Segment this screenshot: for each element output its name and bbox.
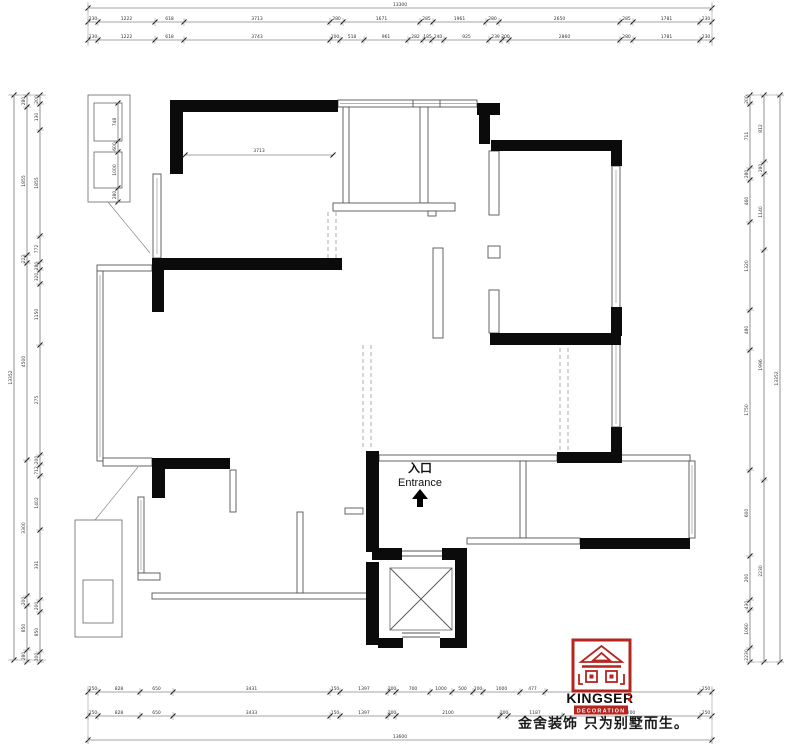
dim-chain-right-total: 13352: [774, 93, 784, 665]
svg-text:2230: 2230: [758, 565, 764, 577]
svg-text:1000: 1000: [496, 686, 508, 692]
svg-text:285: 285: [422, 16, 431, 22]
svg-text:280: 280: [622, 34, 631, 40]
entrance-label-cn: 入口: [408, 461, 432, 475]
svg-text:200: 200: [34, 95, 40, 104]
svg-text:280: 280: [744, 170, 750, 179]
svg-text:3743: 3743: [251, 34, 263, 40]
svg-text:13300: 13300: [393, 2, 407, 8]
svg-text:3300: 3300: [21, 522, 27, 534]
elevator-shaft: [390, 551, 452, 637]
svg-text:185: 185: [423, 34, 432, 40]
svg-text:331: 331: [34, 561, 40, 570]
svg-text:4500: 4500: [21, 356, 27, 368]
svg-text:700: 700: [409, 686, 418, 692]
svg-text:200: 200: [388, 686, 397, 692]
dim-chain-left-inner: 2001301855772280320115027520071214023312…: [34, 93, 44, 665]
svg-text:230: 230: [702, 16, 711, 22]
svg-text:600: 600: [112, 142, 118, 151]
svg-text:1402: 1402: [34, 497, 40, 509]
svg-text:650: 650: [152, 710, 161, 716]
dim-chain-detail-box: 7486001000280: [112, 101, 122, 205]
dim-chain-left-total: 13352: [8, 93, 18, 663]
floor-plan-drawing: 13300 2301222618371328016712851961280265…: [0, 0, 800, 756]
svg-text:200: 200: [34, 456, 40, 465]
svg-text:3713: 3713: [251, 16, 263, 22]
svg-text:712: 712: [34, 466, 40, 475]
interior-dim-label: 3713: [253, 148, 265, 154]
detail-box-top-left: [88, 95, 150, 253]
svg-text:230: 230: [89, 34, 98, 40]
svg-text:1855: 1855: [34, 177, 40, 189]
svg-text:13600: 13600: [393, 734, 407, 740]
svg-text:1961: 1961: [454, 16, 466, 22]
svg-text:285: 285: [622, 16, 631, 22]
svg-text:240: 240: [434, 34, 443, 40]
svg-text:2230: 2230: [744, 649, 750, 661]
svg-text:280: 280: [34, 262, 40, 271]
svg-text:1150: 1150: [34, 309, 40, 321]
svg-text:1320: 1320: [744, 260, 750, 272]
svg-text:280: 280: [332, 16, 341, 22]
svg-text:828: 828: [115, 710, 124, 716]
entrance-label-en: Entrance: [398, 477, 442, 489]
svg-text:280: 280: [488, 16, 497, 22]
svg-text:2860: 2860: [559, 34, 571, 40]
svg-text:250: 250: [702, 686, 711, 692]
svg-text:772: 772: [34, 245, 40, 254]
svg-text:1140: 1140: [758, 206, 764, 218]
svg-text:2650: 2650: [554, 16, 566, 22]
svg-text:1855: 1855: [21, 175, 27, 187]
svg-text:222: 222: [21, 255, 27, 264]
svg-text:275: 275: [34, 396, 40, 405]
svg-text:13352: 13352: [8, 370, 14, 384]
brand-sub: DECORATION: [577, 709, 626, 715]
svg-text:850: 850: [21, 624, 27, 633]
svg-text:1781: 1781: [661, 34, 673, 40]
dim-chain-top-total: 13300: [86, 2, 715, 12]
svg-text:748: 748: [112, 118, 118, 127]
svg-text:828: 828: [115, 686, 124, 692]
svg-text:200: 200: [501, 34, 510, 40]
svg-text:282: 282: [411, 34, 420, 40]
svg-text:200: 200: [21, 597, 27, 606]
dim-chain-bottom-total: 13600: [86, 734, 715, 744]
svg-text:200: 200: [331, 34, 340, 40]
svg-text:239: 239: [491, 34, 500, 40]
svg-text:961: 961: [382, 34, 391, 40]
svg-text:200: 200: [744, 95, 750, 104]
svg-text:1397: 1397: [358, 710, 370, 716]
svg-text:1671: 1671: [376, 16, 388, 22]
svg-text:600: 600: [744, 509, 750, 518]
svg-text:1000: 1000: [435, 686, 447, 692]
dim-chain-right-outer: 812280114019962230: [758, 93, 768, 665]
dim-extension-lines: [8, 2, 784, 744]
svg-text:280: 280: [112, 191, 118, 200]
svg-text:200: 200: [500, 710, 509, 716]
svg-text:460: 460: [744, 197, 750, 206]
dim-chain-top-row2: 2301222618374320051896128218524092523920…: [86, 34, 715, 44]
svg-text:230: 230: [702, 34, 711, 40]
svg-text:200: 200: [388, 710, 397, 716]
svg-text:200: 200: [744, 574, 750, 583]
svg-text:480: 480: [744, 326, 750, 335]
brand-name: KINGSER: [566, 690, 633, 706]
svg-text:711: 711: [744, 132, 750, 141]
entrance-marker: 入口 Entrance: [398, 461, 442, 507]
dashed-lines: [328, 212, 568, 450]
svg-text:500: 500: [458, 686, 467, 692]
svg-text:518: 518: [348, 34, 357, 40]
svg-text:150: 150: [331, 710, 340, 716]
svg-text:430: 430: [744, 601, 750, 610]
svg-text:618: 618: [165, 16, 174, 22]
svg-text:250: 250: [89, 686, 98, 692]
svg-text:150: 150: [331, 686, 340, 692]
interior-dimension: 3713: [183, 148, 336, 158]
detail-box-bottom-left: [75, 467, 138, 637]
svg-text:200: 200: [34, 602, 40, 611]
svg-text:200: 200: [474, 686, 483, 692]
svg-text:812: 812: [758, 124, 764, 133]
svg-text:250: 250: [702, 710, 711, 716]
kingser-logo: KINGSER DECORATION 金舍装饰 只为别墅而生。: [517, 640, 689, 732]
svg-text:1996: 1996: [758, 359, 764, 371]
svg-text:2100: 2100: [442, 710, 454, 716]
svg-text:250: 250: [89, 710, 98, 716]
dim-chain-right-inner: 2007112804601320480175060020043010602230: [744, 93, 754, 665]
svg-text:3431: 3431: [246, 686, 258, 692]
dim-chain-left-outer: 280185522245003300200850280: [21, 93, 31, 665]
svg-text:280: 280: [21, 652, 27, 661]
dim-chain-top-row1: 2301222618371328016712851961280265028517…: [86, 16, 715, 26]
svg-text:1000: 1000: [112, 164, 118, 176]
svg-text:280: 280: [758, 164, 764, 173]
svg-text:850: 850: [34, 628, 40, 637]
floor-plan-page: 13300 2301222618371328016712851961280265…: [0, 0, 800, 756]
entrance-arrow-icon: [412, 489, 428, 507]
svg-text:13352: 13352: [774, 371, 780, 385]
svg-text:1750: 1750: [744, 404, 750, 416]
svg-text:130: 130: [34, 113, 40, 122]
svg-text:1222: 1222: [121, 16, 133, 22]
svg-text:925: 925: [462, 34, 471, 40]
svg-text:280: 280: [21, 97, 27, 106]
svg-text:230: 230: [89, 16, 98, 22]
brand-tagline: 金舍装饰 只为别墅而生。: [517, 715, 689, 732]
svg-text:320: 320: [34, 273, 40, 282]
svg-text:1397: 1397: [358, 686, 370, 692]
svg-text:650: 650: [152, 686, 161, 692]
svg-text:477: 477: [528, 686, 537, 692]
svg-text:618: 618: [165, 34, 174, 40]
svg-text:1781: 1781: [661, 16, 673, 22]
svg-text:1222: 1222: [121, 34, 133, 40]
svg-text:3433: 3433: [246, 710, 258, 716]
svg-text:1060: 1060: [744, 623, 750, 635]
